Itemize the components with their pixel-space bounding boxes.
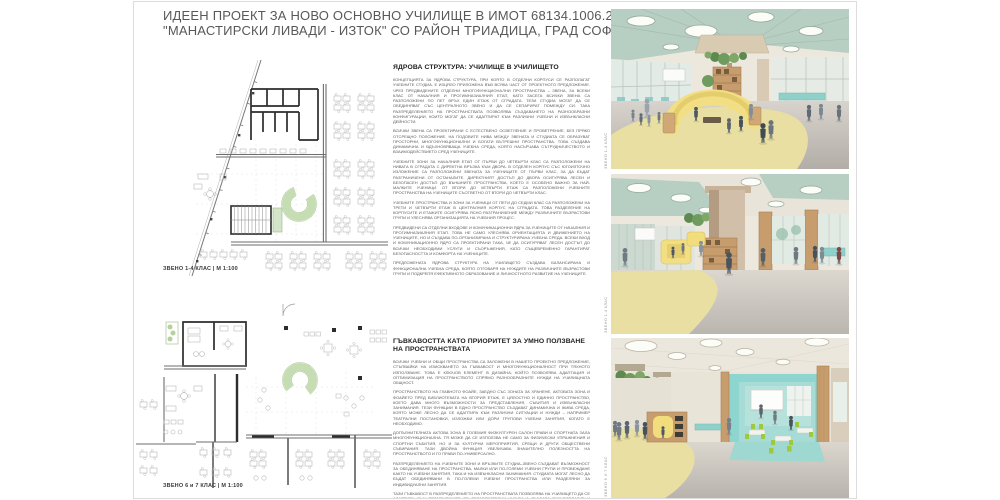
plan2-plants	[166, 322, 178, 344]
teal-bench	[779, 93, 825, 100]
plan2-door-arc	[283, 304, 295, 316]
doorway	[757, 59, 769, 105]
section-flexibility: ГЪВКАВОСТТА КАТО ПРИОРИТЕТ ЗА УМНО ПОЛЗВ…	[393, 338, 590, 499]
render-3-caption: ЗВЕНО 6 И 7 КЛАС	[603, 449, 610, 497]
floor-plan-1-svg	[136, 54, 394, 280]
section-1-paragraph: ПРЕДЛОЖЕНАТА ЯДРОВА СТРУКТУРА НА УЧИЛИЩЕ…	[393, 260, 590, 276]
plan-2-label: ЗВЕНО 6 и 7 КЛАС | М 1:100	[163, 483, 243, 489]
shelf-pod	[647, 412, 687, 442]
section-1-paragraph: ВСИЧКИ ЗВЕНА СА ПРОЕКТИРАНИ С ЕСТЕСТВЕНО…	[393, 128, 590, 154]
whiteboard	[635, 228, 655, 240]
section-1-heading: ЯДРОВА СТРУКТУРА: УЧИЛИЩЕ В УЧИЛИЩЕТО	[393, 64, 590, 72]
section-1-paragraph: УЧЕБНИТЕ ЗОНИ ЗА НАЧАЛНИЯ ЕТАП ОТ ПЪРВИ …	[393, 159, 590, 196]
render-2-caption: ЗВЕНО 1-4 КЛАС	[603, 285, 610, 333]
section-1-paragraph: КОНЦЕПЦИЯТА ЗА ЯДРОВА СТРУКТУРА, ПРИ КОЯ…	[393, 77, 590, 124]
teal-bench	[695, 424, 721, 430]
stairs	[231, 206, 271, 234]
render-1-caption: ЗВЕНО 1-4 КЛАС	[603, 121, 610, 169]
floor-plan-grades-1-4	[136, 54, 394, 280]
project-title: ИДЕЕН ПРОЕКТ ЗА НОВО ОСНОВНО УЧИЛИЩЕ В И…	[163, 8, 639, 38]
green-amphitheater-ring-2	[275, 355, 324, 404]
far-right-window	[833, 382, 847, 422]
section-core-structure: ЯДРОВА СТРУКТУРА: УЧИЛИЩЕ В УЧИЛИЩЕТО КО…	[393, 64, 590, 280]
column-bookshelf	[703, 238, 737, 272]
plan-1-label: ЗВЕНО 1-4 КЛАС | М 1:100	[163, 266, 238, 272]
section-2-paragraph: ВСИЧКИ УЧЕБНИ И ОБЩИ ПРОСТРАНСТВА СА ЗАЛ…	[393, 359, 590, 385]
plan2-walls-light	[136, 366, 392, 488]
render-3-svg	[611, 338, 849, 498]
render-classroom-teal	[611, 338, 849, 498]
floor-plan-2-svg	[136, 302, 394, 488]
section-2-paragraph: РАЗПРЕДЕЛЕНИЕТО НА УЧЕБНИТЕ ЗОНИ И ВРЪЗК…	[393, 461, 590, 487]
plan2-lockers	[304, 330, 387, 342]
plan1-classroom-desks	[334, 94, 374, 235]
section-1-paragraph: ПРЕДВИДЕНИ СА ОТДЕЛНИ ВХОДОВЕ И КОМУНИКА…	[393, 225, 590, 257]
ceiling-recess	[695, 35, 769, 53]
render-1-svg	[611, 9, 849, 169]
teal-bench	[823, 248, 845, 256]
section-1-paragraph: УЧЕБНИТЕ ПРОСТРАНСТВА И ЗОНИ ЗА УЧЕНИЦИ …	[393, 200, 590, 221]
plan1-walls-dark	[251, 89, 318, 140]
presentation-board: ИДЕЕН ПРОЕКТ ЗА НОВО ОСНОВНО УЧИЛИЩЕ В И…	[133, 1, 857, 499]
plan1-walls-light	[216, 84, 388, 245]
title-line-1: ИДЕЕН ПРОЕКТ ЗА НОВО ОСНОВНО УЧИЛИЩЕ В И…	[163, 8, 639, 23]
title-line-2: "МАНАСТИРСКИ ЛИВАДИ - ИЗТОК" СО РАЙОН ТР…	[163, 23, 639, 38]
elevator	[273, 208, 282, 232]
section-2-paragraph: ТАЗИ ГЪВКАВОСТ В РАЗПРЕДЕЛЕНИЕТО НА ПРОС…	[393, 491, 590, 499]
section-2-heading: ГЪВКАВОСТТА КАТО ПРИОРИТЕТ ЗА УМНО ПОЛЗВ…	[393, 338, 590, 354]
render-common-area-sofa	[611, 9, 849, 169]
render-corridor-column	[611, 174, 849, 334]
render-2-svg	[611, 174, 849, 334]
plan1-lounge-furniture	[194, 174, 226, 189]
page: { "title": { "line1": "ИДЕЕН ПРОЕКТ ЗА Н…	[0, 0, 1000, 500]
section-2-paragraph: ДОПЪЛНИТЕЛНАТА АКТОВА ЗОНА В ГОЛЕМИЯ ФИЗ…	[393, 430, 590, 456]
classroom-teal-floor	[729, 442, 825, 462]
section-2-paragraph: ПРОСТРАНСТВОТО НА ГЛАВНОТО ФОАЙЕ, ЗАЕДНО…	[393, 389, 590, 426]
plan2-classroom-desks	[200, 448, 380, 481]
floor-plan-grades-6-7	[136, 302, 394, 488]
whiteboard	[663, 69, 685, 81]
plan2-left-desks	[140, 400, 157, 476]
plant-ball	[702, 75, 714, 87]
plan1-grid	[196, 140, 324, 244]
